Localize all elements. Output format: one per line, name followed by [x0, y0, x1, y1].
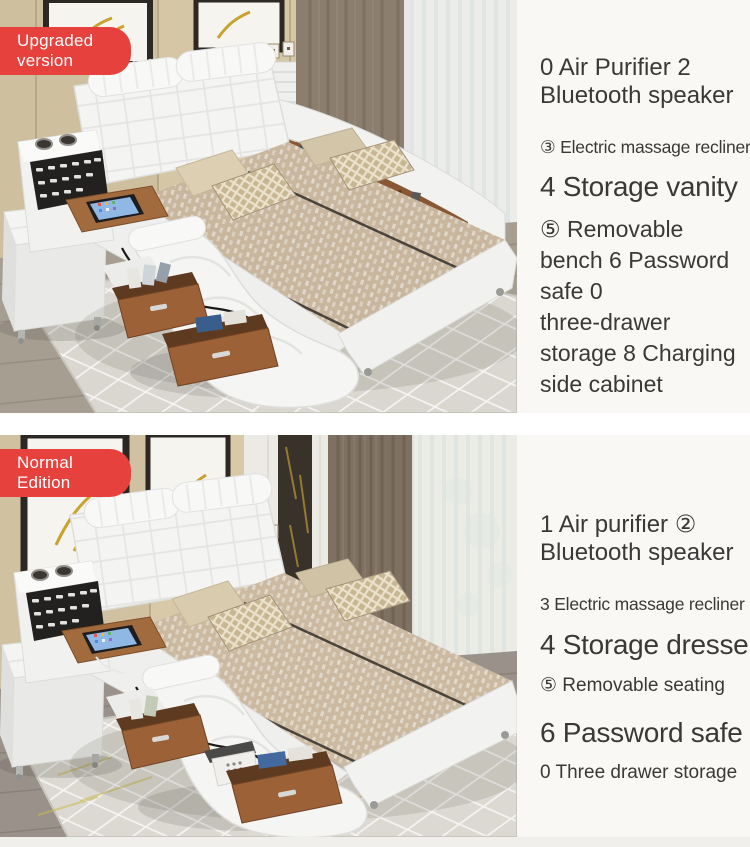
badge-line: Normal	[17, 453, 121, 473]
feature-air-purifier-speaker: 1 Air purifier ② Bluetooth speaker	[540, 511, 744, 567]
bottom-margin-strip	[0, 837, 750, 847]
feature-password-safe: 6 Password safe	[540, 716, 744, 750]
feature-storage-dresser: 4 Storage dresser	[540, 628, 744, 662]
badge-line: Edition	[17, 473, 121, 493]
bed-photo-upgraded: Upgraded version	[0, 0, 517, 413]
feature-list-upgraded: 0 Air Purifier 2 Bluetooth speaker ③ Ele…	[517, 0, 750, 413]
feature-air-purifier-speaker: 0 Air Purifier 2 Bluetooth speaker	[540, 54, 744, 110]
feature-three-drawer-storage: 0 Three drawer storage	[540, 761, 744, 785]
feature-massage-recliner: 3 Electric massage recliner	[540, 593, 744, 615]
product-comparison-image: Upgraded version 0 Air Purifier 2 Blueto…	[0, 0, 750, 847]
bed-photo-normal: Normal Edition	[0, 435, 517, 837]
variant-section-normal: Normal Edition 1 Air purifier ② Bluetoot…	[0, 435, 750, 837]
section-divider	[0, 413, 750, 435]
feature-storage-vanity: 4 Storage vanity	[540, 170, 744, 204]
feature-bench-safe-storage-cabinet: ⑤ Removable bench 6 Password safe 0 thre…	[540, 214, 744, 400]
badge-line: Upgraded	[17, 31, 121, 51]
feature-massage-recliner: ③ Electric massage recliner	[540, 136, 744, 158]
badge-line: version	[17, 51, 121, 71]
variant-badge-upgraded: Upgraded version	[0, 27, 131, 75]
variant-section-upgraded: Upgraded version 0 Air Purifier 2 Blueto…	[0, 0, 750, 413]
feature-list-normal: 1 Air purifier ② Bluetooth speaker 3 Ele…	[517, 435, 750, 837]
feature-removable-seating: ⑤ Removable seating	[540, 674, 744, 698]
variant-badge-normal: Normal Edition	[0, 449, 131, 497]
